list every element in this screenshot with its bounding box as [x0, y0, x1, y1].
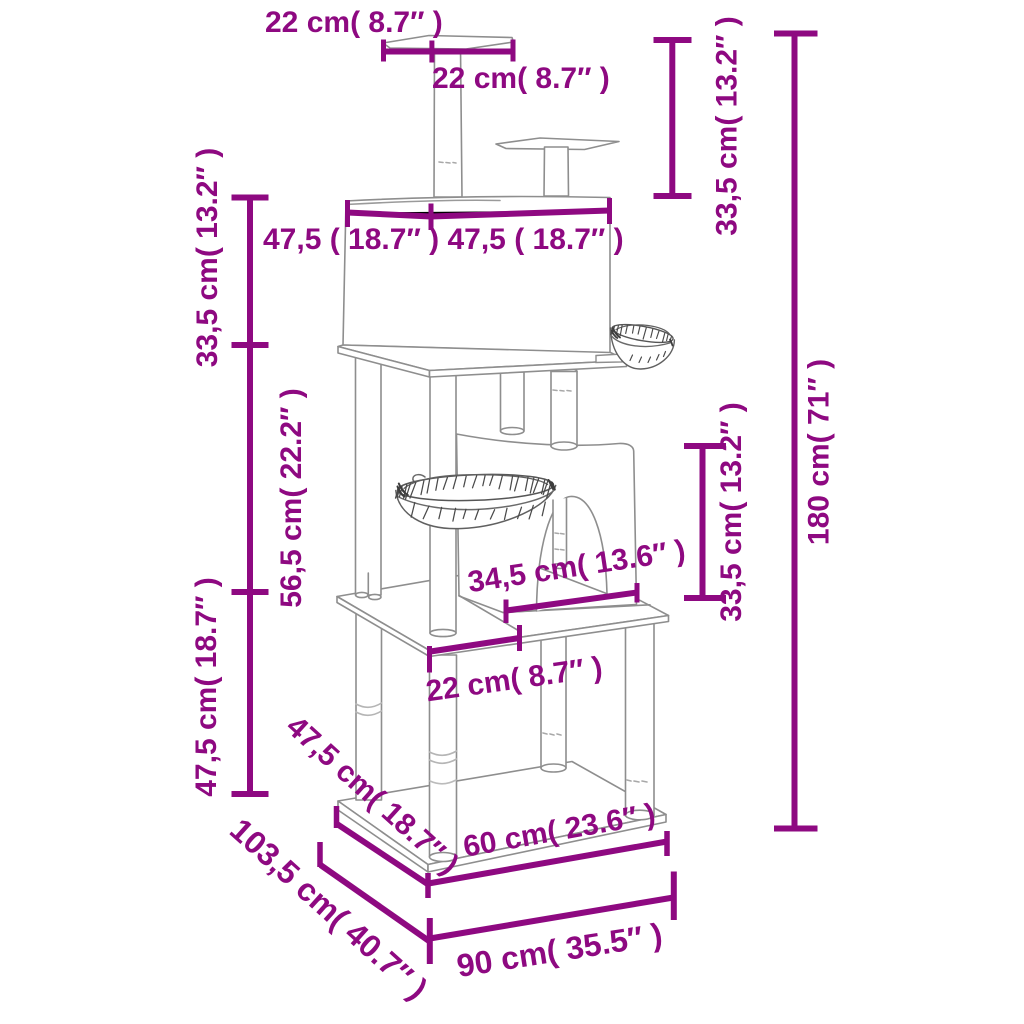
svg-text:33,5 cm( 13.2″ ): 33,5 cm( 13.2″ ) — [711, 16, 744, 236]
svg-text:22 cm( 8.7″ ): 22 cm( 8.7″ ) — [265, 6, 443, 39]
svg-text:56,5 cm( 22.2″ ): 56,5 cm( 22.2″ ) — [275, 388, 308, 608]
svg-text:22 cm( 8.7″ ): 22 cm( 8.7″ ) — [432, 62, 610, 95]
svg-text:47,5 cm( 18.7″ ): 47,5 cm( 18.7″ ) — [190, 577, 223, 797]
svg-text:33,5 cm( 13.2″ ): 33,5 cm( 13.2″ ) — [191, 148, 224, 368]
svg-text:33,5 cm( 13.2″ ): 33,5 cm( 13.2″ ) — [715, 402, 748, 622]
svg-text:47,5 ( 18.7″ ) 47,5 ( 18.7″ ): 47,5 ( 18.7″ ) 47,5 ( 18.7″ ) — [263, 223, 624, 256]
svg-text:180 cm( 71″ ): 180 cm( 71″ ) — [803, 359, 836, 545]
